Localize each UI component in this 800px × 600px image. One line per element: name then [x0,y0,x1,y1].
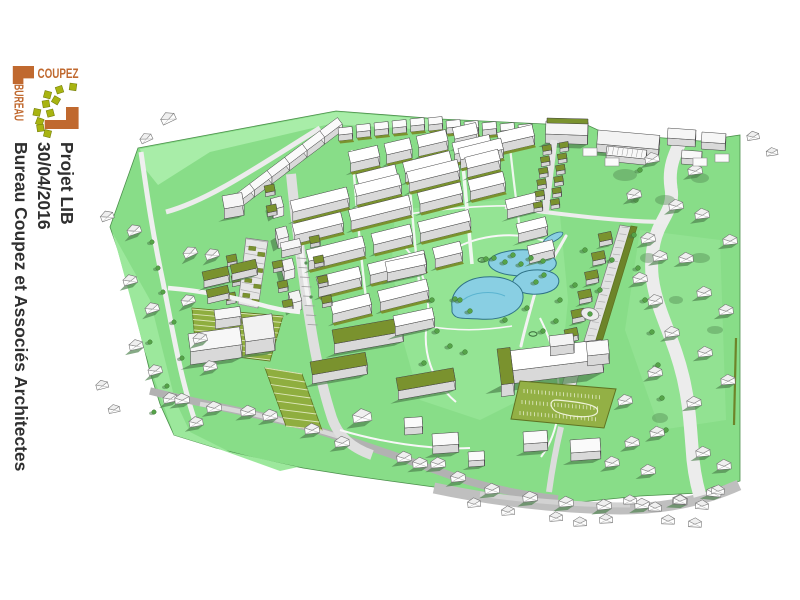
svg-text:BUREAU: BUREAU [11,84,25,121]
svg-text:COUPEZ: COUPEZ [38,66,79,81]
